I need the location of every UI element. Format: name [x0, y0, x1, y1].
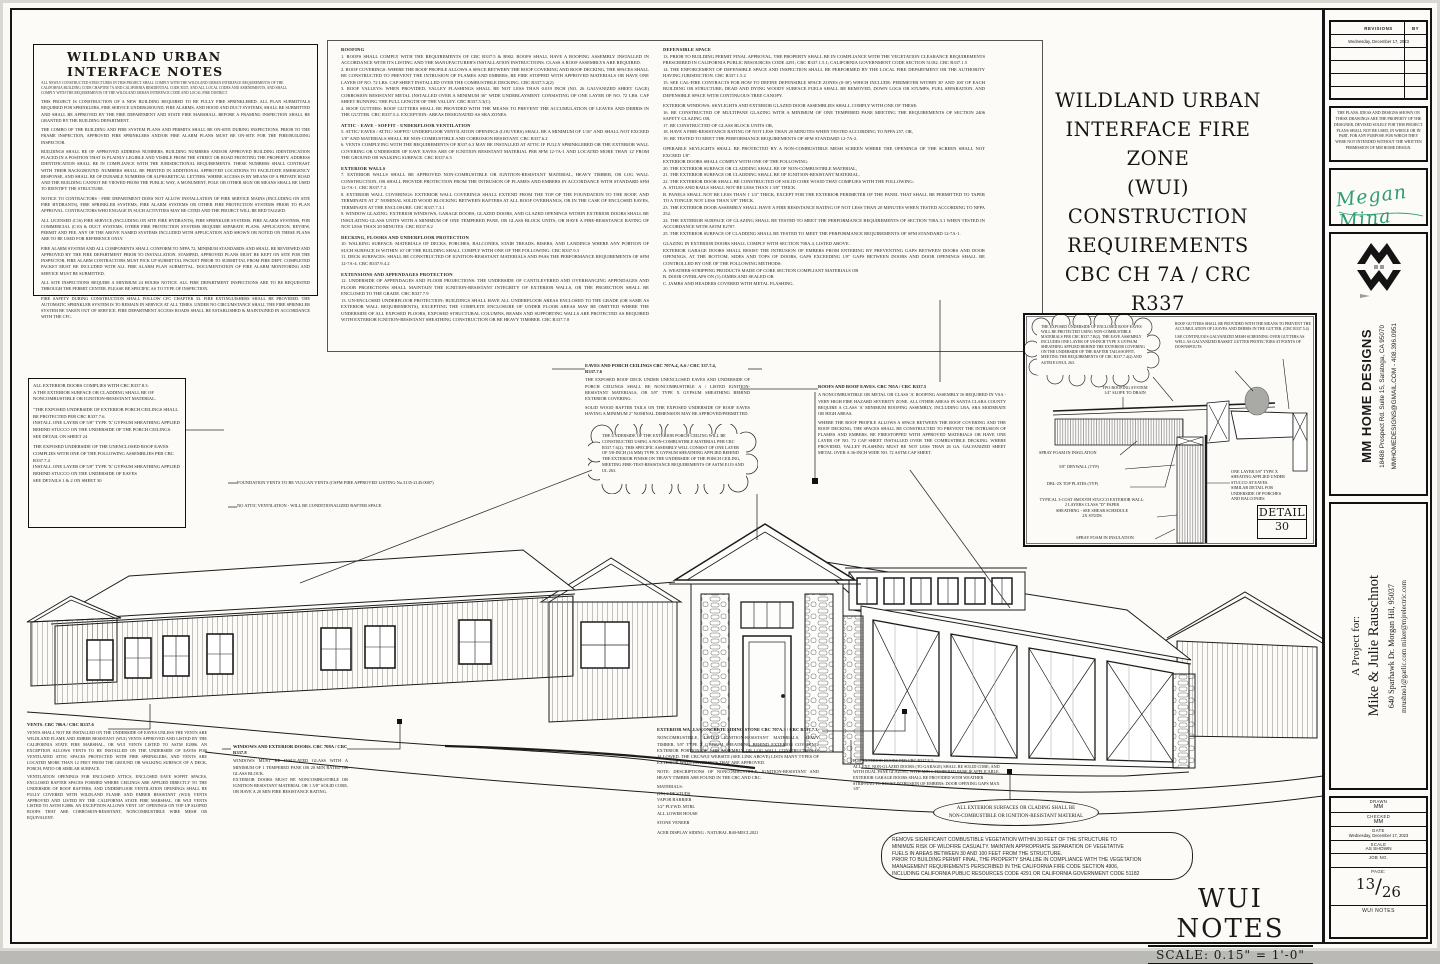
center-notes-column-2: DEFENSIBLE SPACE13. PRIOR TO BUILDING PE… — [663, 47, 985, 291]
section-body: 10. WALKING SURFACE: MATERIALS OF DECKS,… — [341, 241, 649, 267]
callout-paragraph: SOLID WOOD RAFTER TAILS ON THE EXPOSED U… — [585, 405, 750, 417]
wui-note-paragraph: FIRE SAFETY DURING CONSTRUCTION SHALL FO… — [41, 296, 310, 321]
callout-paragraph: NONCOMBUSTIBLE, LISTED IGNITION-RESISTAN… — [657, 735, 819, 766]
wui-note-paragraph: FIRE ALARM SYSTEM AND ALL COMPONENTS SHA… — [41, 246, 310, 277]
revision-by — [1404, 35, 1426, 47]
sheet-info-block: DRAWN MM CHECKED MM DATE Wednesday, Dece… — [1329, 796, 1428, 939]
stucco-wall-label: TYPICAL 3-COAT SMOOTH STUCCO EXTERIOR WA… — [1027, 497, 1157, 519]
project-client-name: Mike & Julie Rauschnot — [1366, 575, 1383, 716]
page-number: 13/26 — [1331, 874, 1426, 898]
revision-date: Wednesday, December 17, 2023 — [1348, 39, 1409, 44]
footer-sheet-name: WUI NOTES — [1148, 884, 1313, 947]
sheet-title-line: REQUIREMENTS — [1042, 231, 1274, 260]
gypsum-sheathing-label: ONE LAYER 5/8" TYPE X SHEATING APPLIED U… — [1231, 469, 1301, 502]
section-body: OPERABLE SKYLIGHTS SHALL BE PROTECTED BY… — [663, 146, 985, 237]
sheet-title-line: CONSTRUCTION — [1042, 202, 1274, 231]
porch-ceiling-cloud-note: THE UNDERSIDE OF THE EXTERIOR PORCH CEIL… — [588, 424, 758, 494]
wui-note-paragraph: NOTICE TO CONTRACTORS - FIRE DEPARTMENT … — [41, 196, 310, 215]
vegetation-management-note: REMOVE SIGNIFICANT COMBUSTIBLE VEGETATIO… — [881, 832, 1193, 880]
top-plates-label: DBL-2X TOP PLATES (TYP) — [1047, 481, 1129, 486]
callout-heading: ROOFS AND ROOF EAVES. CBC 705A / CRC R33… — [818, 384, 1006, 390]
project-for-label: A Project for: — [1350, 616, 1362, 676]
wui-notes-box: WILDLAND URBAN INTERFACE NOTES ALL NEWLY… — [33, 44, 318, 296]
section-body: EXTERIOR WINDOWS, SKYLIGHTS AND EXTERIOR… — [663, 103, 985, 142]
callout-paragraph: WINDOWS MUST BE INSULATED GLASS WITH A M… — [233, 758, 348, 795]
page-area: PAGE: 13/26 — [1331, 868, 1426, 906]
project-text-group: A Project for: Mike & Julie Rauschnot 64… — [1331, 510, 1426, 782]
detail-title: DETAIL — [1258, 506, 1306, 520]
vents-note-block: VENTS. CBC 706A / CRC R337.6 VENTS SHALL… — [27, 722, 207, 821]
wui-note-paragraph: THE COMBO OF THE BUILDING AND FIRE SYSTE… — [41, 127, 310, 146]
tpo-roof-label: TPO ROOFING SYSTEM 1/4" SLOPE TO DRAIN — [1085, 385, 1165, 396]
sheet-title-line: WILDLAND URBAN — [1042, 86, 1274, 115]
callout-foundation-vents: FOUNDATION VENTS TO BE VULCAN VENTS (CSF… — [237, 480, 437, 485]
sheet-title-line: (WUI) — [1042, 173, 1274, 202]
section-body: GLAZING IN EXTERIOR DOORS SHALL COMPLY W… — [663, 241, 985, 287]
brand-text-group: MM HOME DESIGNS 18488 Prospect Rd. Suite… — [1331, 304, 1426, 488]
drawn-row: DRAWN MM — [1331, 798, 1426, 813]
plan-sheet: WILDLAND URBAN INTERFACE NOTES ALL NEWLY… — [0, 0, 1440, 951]
section-body: 7. EXTERIOR WALLS SHALL BE APPROVED NON-… — [341, 172, 649, 231]
designer-brand-box: MM HOME DESIGNS 18488 Prospect Rd. Suite… — [1329, 232, 1428, 496]
by-label: BY — [1404, 22, 1426, 34]
sheet-footer: WUI NOTES SCALE: 0.15" = 1'-0" — [1148, 884, 1313, 964]
sheet-title: WILDLAND URBAN INTERFACE FIRE ZONE (WUI)… — [1042, 86, 1274, 318]
callout-paragraph: THE EXPOSED ROOF DECK UNDER UNENCLOSED E… — [585, 377, 750, 402]
detail-number: 30 — [1258, 520, 1306, 533]
callout-paragraph: VENTS SHALL NOT BE INSTALLED ON THE UNDE… — [27, 730, 207, 771]
project-address: 640 Sparhawk Dr. Morgan Hil, 95037 — [1387, 584, 1396, 708]
designer-signature-box: Megan Mina — [1329, 168, 1428, 226]
wui-note-paragraph: BUILDINGS SHALL BE OF APPROVED ADDRESS N… — [41, 149, 310, 193]
spray-foam-label: SPRAY FOAM IN INSULATION — [1039, 450, 1121, 455]
revision-row — [1331, 87, 1426, 100]
section-body: 5. ATTIC/ EAVES / ATTIC/ SOFFIT/ UNDERFL… — [341, 129, 649, 162]
checked-row: CHECKED MM — [1331, 813, 1426, 828]
page-num: 13 — [1356, 875, 1375, 893]
footer-scale: SCALE: 0.15" = 1'-0" — [1148, 947, 1313, 964]
callout-roofs-eaves: ROOFS AND ROOF EAVES. CBC 705A / CRC R33… — [818, 384, 1006, 457]
callout-garage-doors: FOR EXTERIOR DOORS PER CBC R337.8.3: ALL… — [853, 758, 1005, 792]
checked-value: MM — [1331, 819, 1426, 825]
page-separator: / — [1375, 874, 1382, 898]
brand-name: MM HOME DESIGNS — [1359, 329, 1374, 463]
detail-title-box: DETAIL 30 — [1257, 505, 1307, 539]
callout-no-attic-ventilation: NO ATTIC VENTILATION - WILL BE CONDITION… — [237, 503, 437, 508]
scale-row: SCALE AS SHOWN — [1331, 841, 1426, 855]
scale-value: AS SHOWN — [1331, 847, 1426, 852]
callout-paragraph: VENTILATION OPENINGS FOR ENCLOSED ATTICS… — [27, 774, 207, 821]
project-emails: mrushno1@garlic.com miker@mjrelectric.co… — [1400, 580, 1408, 713]
section-body: 1. ROOFS SHALL COMPLY WITH THE REQUIREME… — [341, 54, 649, 119]
note-paragraph: ALL EXTERIOR DOORS COMPLIES WITH CBC R33… — [33, 383, 181, 403]
drywall-label: 5/8" DRYWALL (TYP) — [1059, 464, 1123, 469]
callout-heading: WINDOWS AND EXTERIOR DOORS. CBC 708A / C… — [233, 744, 348, 756]
page-total: 26 — [1382, 883, 1401, 901]
gutter-note: ROOF GUTTERS SHALL BE PROVIDED WITH THE … — [1175, 322, 1311, 332]
sheet-name-label: WUI NOTES — [1331, 906, 1426, 914]
job-label: JOB NO. — [1331, 855, 1426, 860]
gutter-screen-note: USE CONTINUOUS GALVANIZED MESH SCREENING… — [1175, 335, 1311, 350]
revision-row — [1331, 61, 1426, 74]
title-block-strip: REVISIONS BY Wednesday, December 17, 202… — [1322, 8, 1432, 944]
wui-note-paragraph: ALL LICENSED (C16) FIRE SERVICE (INCLUDI… — [41, 218, 310, 243]
revision-row — [1331, 74, 1426, 87]
callout-paragraph: WHERE THE ROOF PROFILE ALLOWS A SPACE BE… — [818, 420, 1006, 457]
revision-row — [1331, 48, 1426, 61]
drawn-value: MM — [1331, 804, 1426, 810]
section-body: 12. UNDERSIDE OF APPENDAGES AND FLOOR PR… — [341, 278, 649, 324]
callout-exterior-walls: EXTERIOR WALLS/CONCRETE SIDING STONE CBC… — [657, 727, 819, 836]
stone-veneer-label: STONE VENEER — [657, 820, 819, 827]
callout-note: NOTE: DESCRIPTIONS OF NONCOMBUSTIBLE, IG… — [657, 769, 819, 781]
revisions-table: REVISIONS BY Wednesday, December 17, 202… — [1329, 20, 1428, 100]
wui-notes-title: WILDLAND URBAN INTERFACE NOTES — [41, 49, 310, 79]
signature-flourish — [1331, 170, 1428, 226]
job-row: JOB NO. — [1331, 854, 1426, 868]
center-notes-column-1: ROOFING1. ROOFS SHALL COMPLY WITH THE RE… — [341, 47, 649, 328]
revisions-header-row: REVISIONS BY — [1331, 22, 1426, 35]
callout-heading: EXTERIOR WALLS/CONCRETE SIDING STONE CBC… — [657, 727, 819, 733]
note-paragraph: "THE EXPOSED UNDERSIDE OF EXTERIOR PORCH… — [33, 407, 181, 440]
spray-foam-label-2: SPRAY FOAM IN INSULATION — [1055, 535, 1155, 540]
wui-note-paragraph: ALL SITE INSPECTIONS REQUIRE A MINIMUM 2… — [41, 280, 310, 292]
cloud-note-text: THE UNDERSIDE OF THE EXTERIOR PORCH CEIL… — [602, 433, 744, 474]
wui-note-paragraph: THIS PROJECT IS CONSTRUCTION OF A NEW BU… — [41, 99, 310, 124]
section-body: 13. PRIOR TO BUILDING PERMIT FINAL APPRO… — [663, 54, 985, 100]
wui-notes-subtitle: ALL NEWLY CONSTRUCTED STRUCTURES IN THIS… — [41, 81, 288, 96]
callout-heading: EAVES AND PORCH CEILINGS CBC 707A.4, A.6… — [585, 363, 750, 375]
callout-windows-doors: WINDOWS AND EXTERIOR DOORS. CBC 708A / C… — [233, 744, 348, 795]
copyright-note: THE PLANS, IDEAS AND DESIGNS SHOWN ON TH… — [1329, 106, 1428, 162]
callout-paragraph: A NONCOMBUSTIBLE OR METAL OR CLASS 'A' R… — [818, 392, 1006, 417]
date-value: Wednesday, December 17, 2023 — [1331, 833, 1426, 838]
callout-eaves-porch-ceilings: EAVES AND PORCH CEILINGS CBC 707A.4, A.6… — [585, 363, 750, 417]
siding-spec-line: ACER DISPLAY SIDING : NATURAL R40-MECL20… — [657, 830, 819, 837]
sheet-title-line: CBC CH 7A / CRC R337 — [1042, 260, 1274, 318]
detail-gutter-notes: ROOF GUTTERS SHALL BE PROVIDED WITH THE … — [1175, 322, 1311, 353]
note-paragraph: THE EXPOSED UNDERSIDE OF THE UNENCLOSED … — [33, 444, 181, 484]
sheet-title-line: INTERFACE FIRE ZONE — [1042, 115, 1274, 173]
project-info-box: A Project for: Mike & Julie Rauschnot 64… — [1329, 502, 1428, 790]
date-row: DATE Wednesday, December 17, 2023 — [1331, 827, 1426, 841]
revisions-label: REVISIONS — [1364, 26, 1392, 31]
detail-30-box: THE EXPOSED UNDERSIDE OF ENCLOSED ROOF E… — [1023, 313, 1317, 547]
brand-contact: MMHOMEDESIGNS@GMAIL.COM - 408.396.0951 — [1391, 323, 1398, 469]
callout-heading: VENTS. CBC 706A / CRC R337.6 — [27, 722, 207, 728]
revision-row: Wednesday, December 17, 2023 — [1331, 35, 1426, 48]
brand-address: 18488 Prospect Rd. Suite 15, Saratoga, C… — [1379, 325, 1386, 468]
oval-cladding-note: ALL EXTERIOR SURFACES OR CLADING SHALL B… — [933, 799, 1099, 826]
detail-cloud-note: THE EXPOSED UNDERSIDE OF ENCLOSED ROOF E… — [1041, 325, 1151, 366]
mm-home-designs-logo-icon — [1354, 238, 1404, 300]
materials-list: MATERIALS: (2X) 2 DF STUDS VAPOR BARRIER… — [657, 784, 819, 817]
